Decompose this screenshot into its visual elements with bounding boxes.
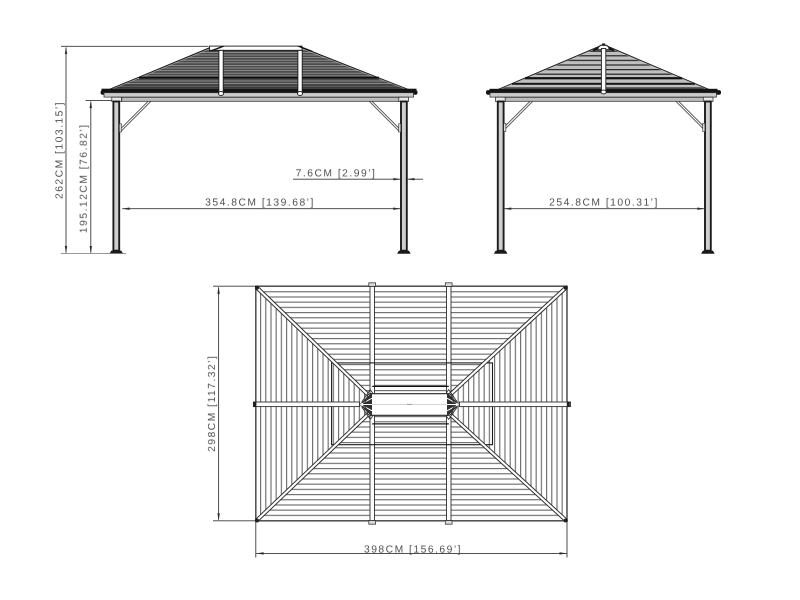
svg-text:7.6CM [2.99’]: 7.6CM [2.99’] <box>296 168 377 179</box>
svg-text:398CM [156.69’]: 398CM [156.69’] <box>364 545 462 556</box>
svg-text:354.8CM [139.68’]: 354.8CM [139.68’] <box>205 198 315 209</box>
svg-text:262CM [103.15’]: 262CM [103.15’] <box>55 101 66 199</box>
svg-text:298CM [117.32’]: 298CM [117.32’] <box>207 355 218 452</box>
svg-text:195.12CM [76.82’]: 195.12CM [76.82’] <box>79 123 90 233</box>
svg-text:254.8CM [100.31’]: 254.8CM [100.31’] <box>549 198 659 209</box>
